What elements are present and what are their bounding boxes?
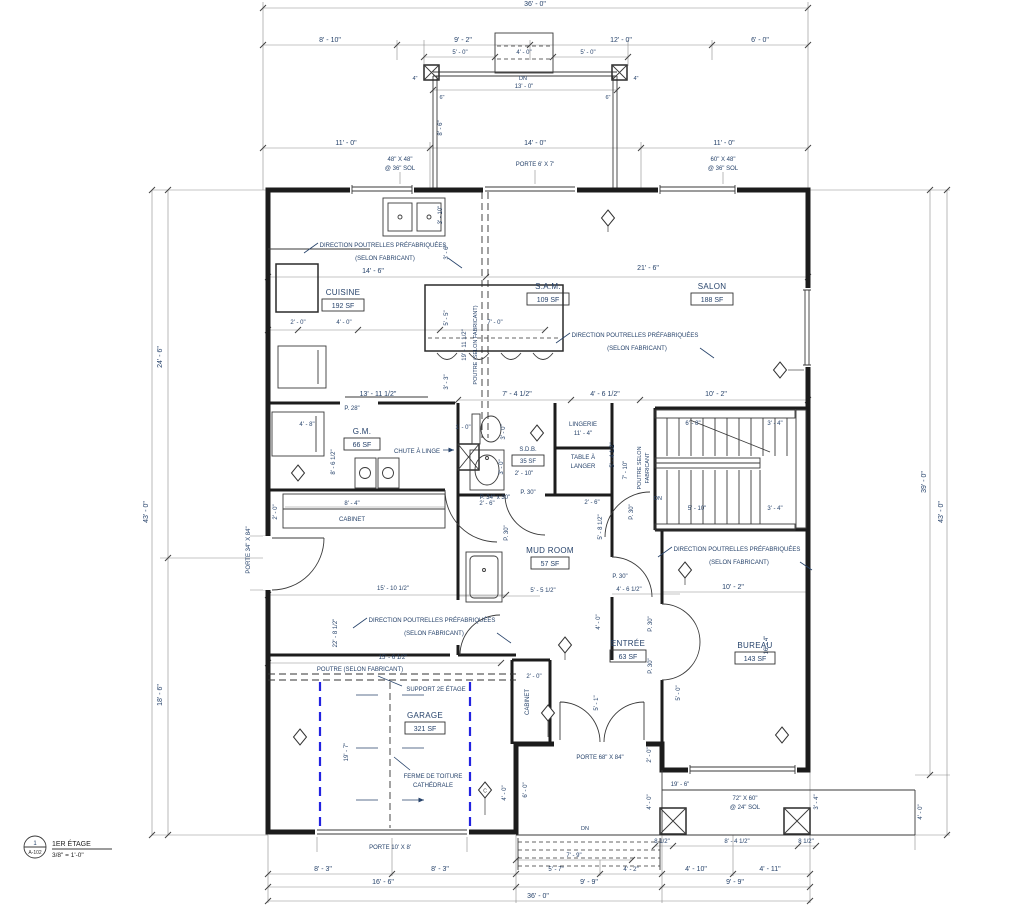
room-area-mud: 57 SF xyxy=(541,561,560,568)
dim: 10' - 2" xyxy=(705,391,727,398)
dim: 4' - 6 1/2" xyxy=(590,391,620,398)
dim: 3' - 3" xyxy=(444,374,450,389)
dim: 3' - 10" xyxy=(438,206,444,225)
room-area-sam: 109 SF xyxy=(537,297,560,304)
dim: 7' - 9" xyxy=(566,853,581,859)
room-area-entree: 63 SF xyxy=(619,654,638,661)
dn-label: DN xyxy=(581,826,589,832)
stair-wall-hatch-right xyxy=(796,410,806,528)
annotation: FERME DE TOITURE xyxy=(404,774,463,780)
dim: 19' - 6" xyxy=(671,782,690,788)
view-title-block: 1 A-102 1ER ÉTAGE 3/8" = 1'-0" xyxy=(24,836,112,859)
dim: 15' - 10 1/2" xyxy=(377,586,409,592)
dim: 11' - 0" xyxy=(713,140,735,147)
dim: 4' - 2" xyxy=(623,867,638,873)
dim: 2' - 10" xyxy=(515,471,534,477)
annotation: CHUTE À LINGE xyxy=(394,448,440,455)
leaders xyxy=(304,225,812,815)
kitchen-sink xyxy=(383,198,445,236)
dim: 43' - 0" xyxy=(938,501,945,523)
island-stools xyxy=(437,353,553,360)
dim: 14' - 6" xyxy=(362,268,384,275)
dim: 5' - 7" xyxy=(548,867,563,873)
room-name-sam: S.A.M. xyxy=(535,282,561,291)
dim: 21' - 6" xyxy=(637,265,659,272)
dim: 13' - 11 1/2" xyxy=(360,391,397,398)
room-name-cuisine: CUISINE xyxy=(326,288,361,297)
room-area-bureau: 143 SF xyxy=(744,656,767,663)
porch-post-right xyxy=(612,65,627,80)
dim: 8' - 4 1/2" xyxy=(724,839,749,845)
dim: 4' - 0" xyxy=(596,614,602,629)
dim: 5' - 5 1/2" xyxy=(530,588,555,594)
dim: 8' - 4" xyxy=(344,501,359,507)
dim: 2' - 6" xyxy=(479,501,494,507)
dim: 4' - 0" xyxy=(502,785,508,800)
garage-blue-dashed xyxy=(320,682,470,830)
dim: 13' - 0" xyxy=(515,84,534,90)
room-area-sdb: 35 SF xyxy=(520,459,536,465)
door-label: PORTE 68" X 84" xyxy=(576,755,623,761)
tag-icon xyxy=(679,562,692,578)
porch-post-br xyxy=(784,808,810,834)
dim: 2' - 0" xyxy=(647,747,653,762)
dim: 12' - 0" xyxy=(610,37,632,44)
dim: 5' - 5" xyxy=(444,310,450,325)
dim: 6' - 0" xyxy=(751,37,769,44)
tag-letter: C xyxy=(483,789,487,795)
laundry-chute-shaft xyxy=(458,444,479,470)
dim: 4' - 10" xyxy=(685,866,707,873)
floor-plan-drawing: C 36' - 0" 8' - 10" 9' - 2" 12' - 0" 6' … xyxy=(0,0,1032,905)
dim: 4' - 8" xyxy=(299,422,314,428)
tag-icon xyxy=(602,210,615,226)
dim-lines xyxy=(152,8,947,901)
dim: 10' - 2" xyxy=(722,584,744,591)
dim: 3' - 4" xyxy=(767,506,782,512)
beam-vertical xyxy=(482,192,488,438)
dim: 4' - 0" xyxy=(918,804,924,819)
tag-icon xyxy=(542,705,555,721)
gm-appliance xyxy=(272,412,324,456)
stair-wall-hatch-top xyxy=(655,410,795,418)
sheet-number: A-102 xyxy=(28,850,42,856)
dim: 4" xyxy=(633,76,638,82)
view-scale: 3/8" = 1'-0" xyxy=(52,852,84,859)
dim: 4" xyxy=(412,76,417,82)
annotation: (SELON FABRICANT) xyxy=(355,256,415,262)
room-area-garage: 321 SF xyxy=(414,726,437,733)
annotation: (SELON FABRICANT) xyxy=(607,346,667,352)
window-label: @ 24" SOL xyxy=(730,805,761,811)
dim: 2' - 6" xyxy=(584,500,599,506)
dim: 9' - 2" xyxy=(454,37,472,44)
dim: 2' - 0" xyxy=(273,504,279,519)
annotation: CABINET xyxy=(525,689,531,715)
dim: 8 1/2" xyxy=(798,839,813,845)
dim: 8' - 3" xyxy=(314,866,332,873)
toilet xyxy=(472,414,501,444)
dim: 8' - 6" xyxy=(438,120,444,135)
dim: 36' - 0" xyxy=(524,1,546,8)
dim: 4' - 11" xyxy=(759,866,781,873)
door-label: P. 30" xyxy=(648,658,654,673)
dim: 7' - 10" xyxy=(623,461,629,480)
dim: 8' - 10" xyxy=(319,37,341,44)
dim: 5' - 0" xyxy=(452,50,467,56)
dim: 8' - 3" xyxy=(431,866,449,873)
dim: 3' - 4" xyxy=(814,794,820,809)
door-label: P. 30" xyxy=(629,504,635,519)
room-name-salon: SALON xyxy=(698,282,727,291)
dim: 2' - 0" xyxy=(526,674,541,680)
dn-label: DN xyxy=(519,76,527,82)
annotation: SUPPORT 2E ÉTAGE xyxy=(406,686,465,693)
tag-icon xyxy=(559,637,572,653)
door-label: P. 30" xyxy=(648,616,654,631)
tag-icon xyxy=(292,465,305,481)
mudroom-bench xyxy=(466,552,502,602)
detail-number: 1 xyxy=(33,841,37,847)
dim: 16' - 6" xyxy=(372,879,394,886)
room-name-bureau: BUREAU xyxy=(737,641,772,650)
dim: 22' - 8 1/2" xyxy=(333,619,339,648)
annotation: (SELON FABRICANT) xyxy=(709,560,769,566)
porch-post-left xyxy=(424,65,439,80)
dim: 4' - 0" xyxy=(647,794,653,809)
room-name-gm: G.M. xyxy=(353,427,372,436)
room-name-sdb: S.D.B. xyxy=(519,447,537,453)
dim: 39' - 0" xyxy=(921,471,928,493)
annotation: POUTRE (SELON FABRICANT) xyxy=(317,667,403,673)
annotation: DIRECTION POUTRELLES PRÉFABRIQUÉES xyxy=(572,332,699,339)
dim: 24' - 6" xyxy=(157,346,164,368)
dim: 8 1/2" xyxy=(654,839,669,845)
annotation: FABRICANT xyxy=(645,452,651,484)
dim: 5' - 10" xyxy=(688,506,707,512)
dim: 18' - 6" xyxy=(157,684,164,706)
dim: 7' - 0" xyxy=(487,320,502,326)
dim: 5' - 8 1/2" xyxy=(598,514,604,539)
door-label: P. 30" xyxy=(612,574,627,580)
dim: 19' - 7" xyxy=(344,743,350,762)
dim: 9' - 9" xyxy=(726,879,744,886)
door-label: P. 30" xyxy=(520,490,535,496)
dim: 43' - 0" xyxy=(143,501,150,523)
dim: 3' - 4" xyxy=(767,421,782,427)
annotation: DIRECTION POUTRELLES PRÉFABRIQUÉES xyxy=(674,546,801,553)
dim: 11' - 0" xyxy=(335,140,357,147)
window-label: @ 36" SOL xyxy=(708,166,739,172)
dim: 5' - 0" xyxy=(580,50,595,56)
dim: 5' - 1" xyxy=(594,695,600,710)
dim: 6' - 0" xyxy=(523,782,529,797)
door-34x84-swing xyxy=(272,538,324,590)
annotation: LANGER xyxy=(571,464,596,470)
door-label: P. 30" xyxy=(504,525,510,540)
annotation: CABINET xyxy=(339,517,365,523)
dim: 2' - 0" xyxy=(290,320,305,326)
tag-icon xyxy=(776,727,789,743)
dim: 5' - 0" xyxy=(676,685,682,700)
dim: 15' - 6 1/2" xyxy=(379,655,408,661)
room-area-salon: 188 SF xyxy=(701,297,724,304)
room-name-entree: ENTRÉE xyxy=(611,639,645,648)
annotation: POUTRE (SELON FABRICANT) xyxy=(473,305,479,384)
front-double-door-swing xyxy=(560,702,644,742)
laundry-sinks xyxy=(355,458,399,488)
dim: 1' - 0" xyxy=(455,425,470,431)
annotation: (SELON FABRICANT) xyxy=(404,631,464,637)
garage-beam xyxy=(268,674,516,680)
dim: 3' - 0" xyxy=(501,424,507,439)
tag-icon xyxy=(531,425,544,441)
annotation: POUTRE SELON xyxy=(637,446,643,489)
annotation: TABLE À xyxy=(571,454,595,461)
dim: 7' - 4 1/2" xyxy=(502,391,532,398)
window-label: 72" X 60" xyxy=(733,796,758,802)
annotation: DIRECTION POUTRELLES PRÉFABRIQUÉES xyxy=(369,617,496,624)
dim: 14' - 0" xyxy=(524,140,546,147)
beams xyxy=(268,192,516,830)
room-name-mud: MUD ROOM xyxy=(526,546,574,555)
dim: 4' - 0" xyxy=(336,320,351,326)
room-area-cuisine: 192 SF xyxy=(332,303,355,310)
annotation: DIRECTION POUTRELLES PRÉFABRIQUÉES xyxy=(320,242,447,249)
dn-label: DN xyxy=(654,496,662,502)
window-label: @ 36" SOL xyxy=(385,166,416,172)
room-name-garage: GARAGE xyxy=(407,711,443,720)
stove xyxy=(276,264,318,312)
dim: 8' - 6 1/2" xyxy=(331,449,337,474)
annotation: CATHÉDRALE xyxy=(413,782,453,789)
dim: 3' - 0" xyxy=(499,459,505,474)
dim: 36' - 0" xyxy=(527,893,549,900)
staircase xyxy=(655,410,806,530)
porch-steps-dashed xyxy=(518,842,660,866)
fridge xyxy=(278,346,326,388)
dim: 6' - 8" xyxy=(685,421,700,427)
dim: 5' - 4 1/2" xyxy=(610,442,616,467)
dim: 3' - 6" xyxy=(444,244,450,259)
door-label: PORTE 10' X 8' xyxy=(369,845,411,851)
dim: 4' - 0" xyxy=(516,50,531,56)
room-area-gm: 66 SF xyxy=(353,442,372,449)
porch-post-bl xyxy=(660,808,686,834)
tag-icon xyxy=(294,729,307,745)
window-label: 60" X 48" xyxy=(711,157,736,163)
annotation: LINGERIE xyxy=(569,422,597,428)
view-name: 1ER ÉTAGE xyxy=(52,839,91,848)
dim: 9' - 9" xyxy=(580,879,598,886)
tag-icon xyxy=(774,362,787,378)
dim: 19' - 11 1/2" xyxy=(462,329,468,361)
window-label: 48" X 48" xyxy=(388,157,413,163)
door-label: PORTE 6' X 7' xyxy=(516,162,555,168)
dim: 6" xyxy=(439,95,444,101)
door-label: P. 28" xyxy=(344,406,359,412)
door-label: PORTE 34" X 84" xyxy=(246,526,252,573)
dim: 4' - 6 1/2" xyxy=(616,587,641,593)
dim: 6" xyxy=(605,95,610,101)
dim: 11' - 4" xyxy=(574,431,592,437)
